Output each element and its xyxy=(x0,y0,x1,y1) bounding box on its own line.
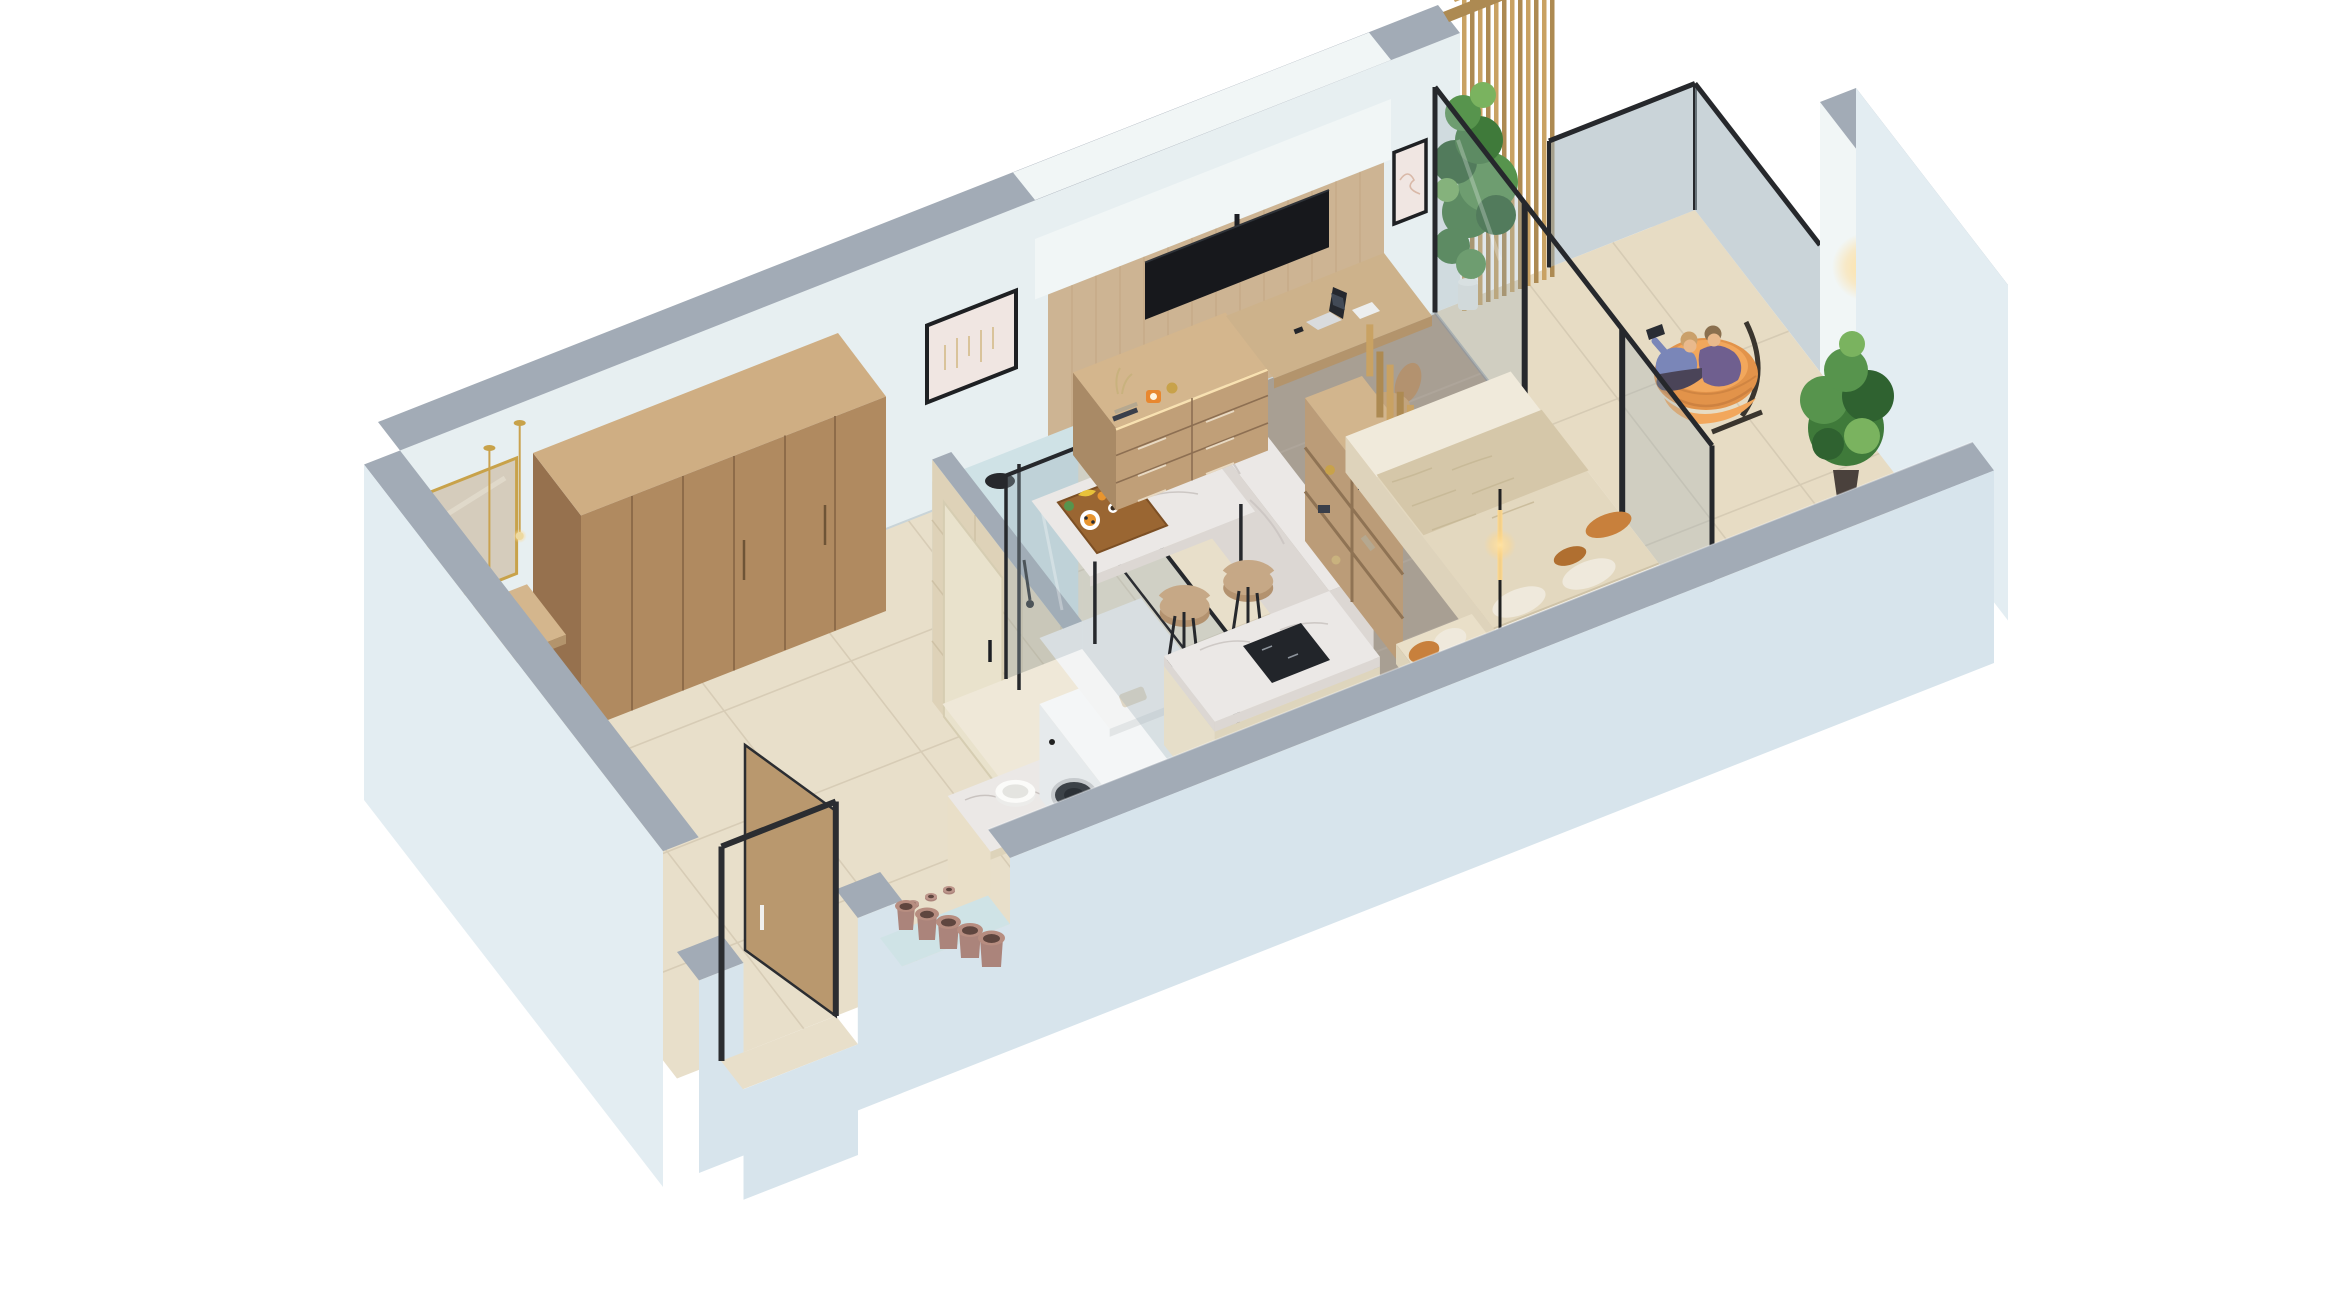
vase xyxy=(1167,383,1178,394)
mini-plant xyxy=(1064,501,1074,511)
floorplan-render xyxy=(0,0,2325,1308)
shower-glass-front xyxy=(1006,446,1082,680)
framed-art-right xyxy=(1394,140,1426,224)
isometric-scene xyxy=(0,0,2325,1308)
